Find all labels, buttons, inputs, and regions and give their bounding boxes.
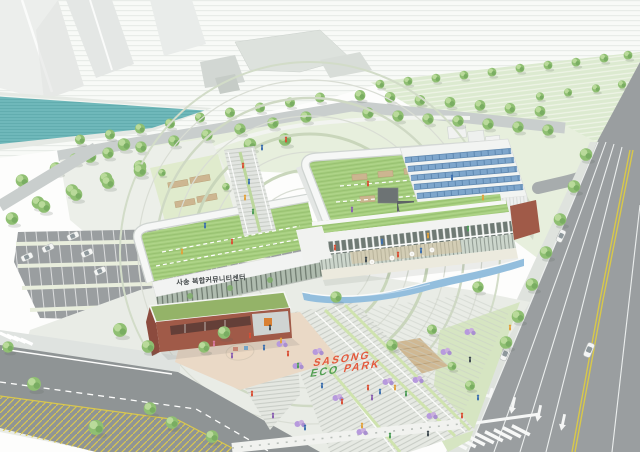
person — [261, 145, 263, 151]
person — [405, 391, 407, 397]
aerial-rendering: 사송 복합커뮤니티센터 SASONGECOPARK — [0, 0, 640, 452]
person — [263, 345, 265, 351]
person — [181, 249, 183, 255]
person — [252, 209, 254, 215]
person — [361, 423, 363, 429]
person — [461, 413, 463, 419]
person — [242, 163, 244, 169]
person — [371, 395, 373, 401]
rooftop-box — [378, 188, 398, 203]
person — [248, 179, 250, 185]
person — [321, 383, 323, 389]
person — [427, 431, 429, 437]
table — [382, 263, 384, 265]
tree — [6, 212, 21, 228]
orange-accent — [264, 318, 272, 326]
person — [394, 385, 396, 391]
table — [402, 259, 404, 261]
person — [509, 325, 511, 331]
person — [285, 137, 287, 143]
person — [272, 413, 274, 419]
umbrella — [409, 251, 414, 256]
indoor-plant — [227, 285, 233, 291]
person — [397, 252, 399, 258]
person — [389, 433, 391, 439]
person — [297, 363, 299, 369]
person — [365, 257, 367, 263]
person — [420, 248, 422, 254]
table — [422, 255, 424, 257]
person — [477, 395, 479, 401]
person — [451, 175, 453, 181]
person — [280, 338, 282, 344]
person — [341, 399, 343, 405]
person — [367, 385, 369, 391]
tree — [38, 200, 53, 216]
person — [351, 207, 353, 213]
indoor-plant — [187, 293, 193, 299]
person — [367, 181, 369, 187]
person — [334, 245, 336, 251]
person — [213, 341, 215, 347]
indoor-plant — [267, 277, 273, 283]
person — [204, 223, 206, 229]
person — [469, 357, 471, 363]
person — [251, 391, 253, 397]
umbrella — [429, 247, 434, 252]
person — [381, 239, 383, 245]
person — [269, 325, 271, 331]
person — [244, 195, 246, 201]
person — [379, 389, 381, 395]
person — [427, 233, 429, 239]
person — [231, 353, 233, 359]
person — [482, 195, 484, 201]
person — [304, 425, 306, 431]
person — [249, 333, 251, 339]
person — [467, 226, 469, 232]
person — [231, 239, 233, 245]
rendering-canvas — [0, 0, 640, 452]
umbrella — [389, 255, 394, 260]
umbrella — [369, 259, 374, 264]
person — [287, 351, 289, 357]
